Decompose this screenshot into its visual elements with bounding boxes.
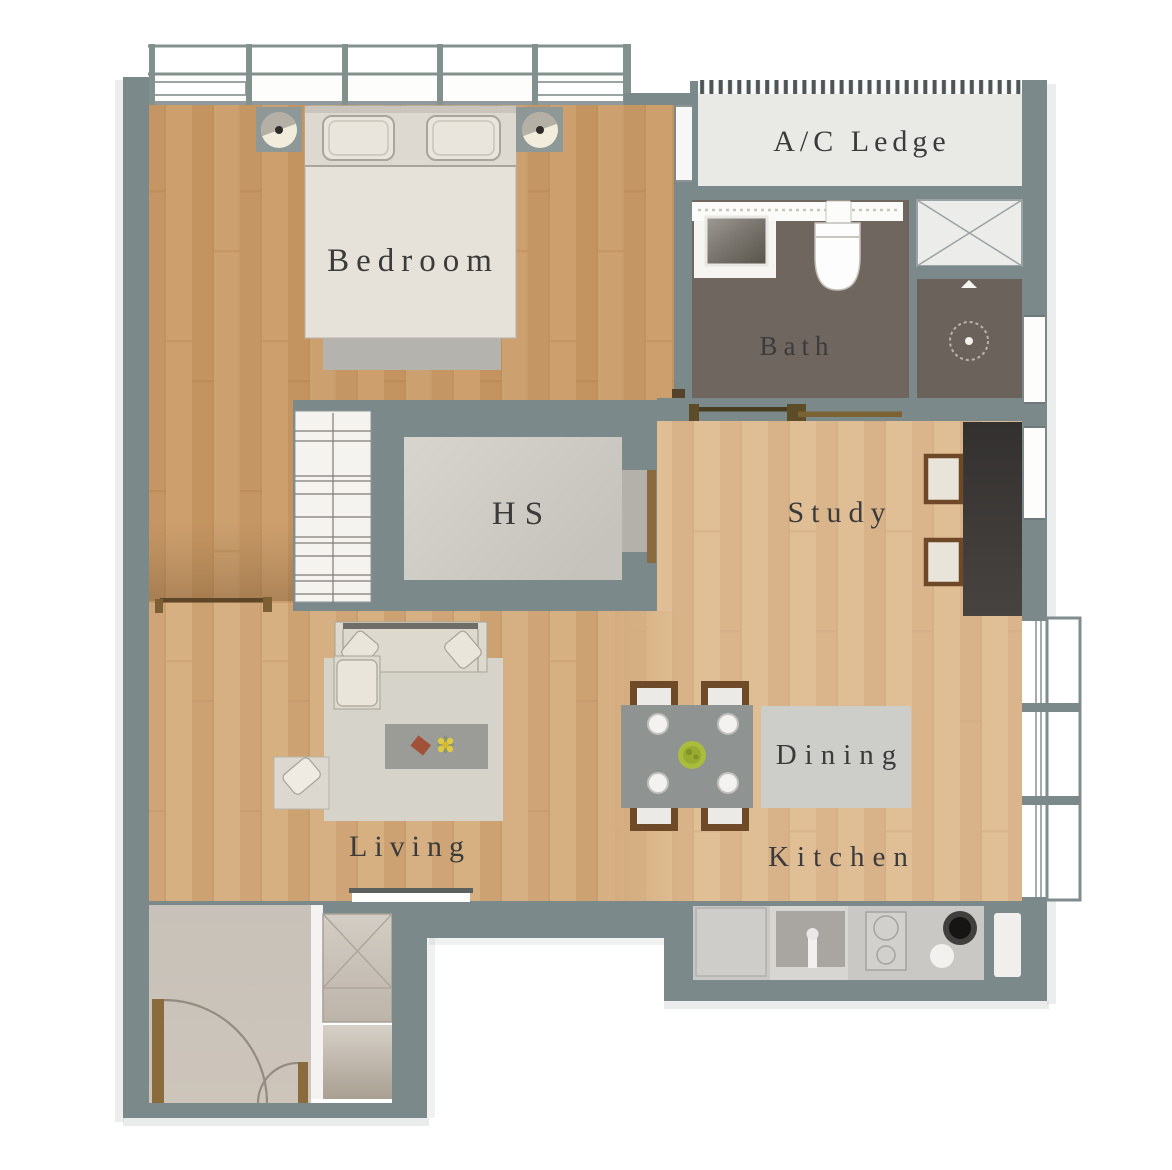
svg-text:Kitchen: Kitchen [768,841,916,873]
svg-text:Living: Living [349,830,471,863]
svg-text:Study: Study [787,496,892,529]
svg-text:HS: HS [492,496,552,532]
svg-text:Dining: Dining [776,739,905,771]
svg-text:Bedroom: Bedroom [327,243,499,279]
svg-text:Bath: Bath [760,331,835,361]
svg-text:A/C Ledge: A/C Ledge [773,125,950,158]
